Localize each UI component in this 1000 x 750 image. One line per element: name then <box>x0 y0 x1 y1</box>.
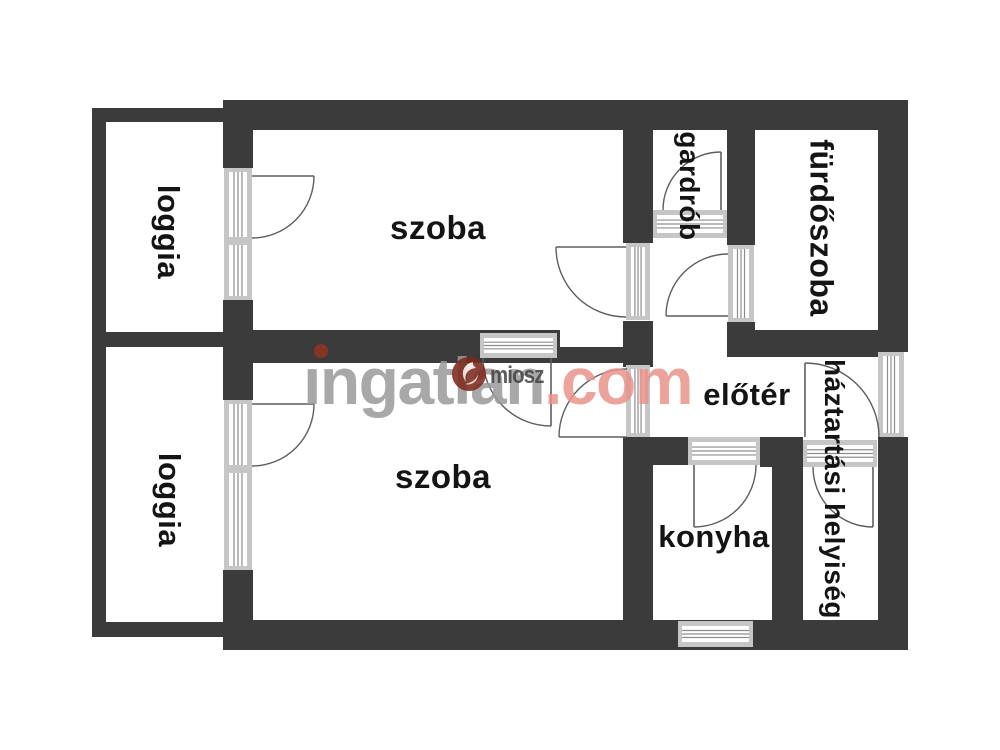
door-swing-arc <box>666 254 728 316</box>
wall-segment <box>92 622 225 637</box>
frame-cap <box>224 168 252 172</box>
door-swing-arc <box>694 465 756 527</box>
frame-cap <box>626 316 650 320</box>
frame-rail <box>728 245 733 322</box>
wall-segment <box>223 100 253 168</box>
room-label-loggia-bottom: loggia <box>151 453 187 547</box>
frame-sill <box>225 465 251 473</box>
wall-segment <box>225 620 908 650</box>
room-label-gardrob: gardrób <box>673 131 705 240</box>
frame-rail <box>224 168 229 300</box>
frame-rail <box>224 400 229 570</box>
wall-segment <box>727 100 755 245</box>
frame-rail <box>480 353 557 358</box>
frame-cap <box>553 333 557 358</box>
wall-segment <box>92 108 106 637</box>
frame-rail <box>247 168 252 300</box>
frame-cap <box>756 437 760 465</box>
wall-segment <box>623 321 653 367</box>
frame-cap <box>749 621 753 647</box>
room-label-furdoszoba: fürdőszoba <box>803 139 840 316</box>
wall-segment <box>223 100 908 130</box>
frame-cap <box>878 352 904 356</box>
frame-cap <box>678 621 682 647</box>
wall-segment <box>772 437 803 620</box>
frame-rail <box>678 642 753 647</box>
wall-segment <box>653 437 688 465</box>
door-swing-arc <box>252 404 314 466</box>
frame-rail <box>878 352 883 437</box>
wall-segment <box>623 437 653 620</box>
wall-segment <box>223 570 253 650</box>
frame-rail <box>749 245 754 322</box>
frame-rail <box>899 352 904 437</box>
door-swing-arc <box>559 369 627 437</box>
door-swing-arc <box>556 247 626 317</box>
frame-cap <box>224 566 252 570</box>
frame-cap <box>728 245 754 249</box>
frame-rail <box>626 243 631 320</box>
frame-cap <box>803 440 807 467</box>
frame-cap <box>653 210 657 238</box>
door-swing-arc <box>252 176 314 238</box>
room-label-szoba-bottom: szoba <box>395 458 491 496</box>
wall-segment <box>92 108 225 122</box>
frame-cap <box>626 433 650 437</box>
room-label-elater: előtér <box>703 377 790 413</box>
floorplan-drawing <box>0 0 1000 750</box>
frame-cap <box>878 433 904 437</box>
floorplan-canvas: szobaszobaelőtérkonyhaloggialoggiagardró… <box>0 0 1000 750</box>
frame-rail <box>626 365 631 437</box>
frame-cap <box>688 437 692 465</box>
frame-cap <box>626 365 650 369</box>
frame-cap <box>723 210 727 238</box>
frame-rail <box>688 460 760 465</box>
frame-cap <box>224 296 252 300</box>
frame-rail <box>678 621 753 626</box>
wall-segment <box>92 332 225 347</box>
frame-cap <box>728 318 754 322</box>
frame-rail <box>688 437 760 442</box>
frame-rail <box>247 400 252 570</box>
door-swing-arc <box>483 358 551 426</box>
room-label-konyha: konyha <box>658 519 770 555</box>
frame-rail <box>645 243 650 320</box>
room-label-haztartasi-helyiseg: háztartási helyiség <box>818 359 850 619</box>
wall-segment <box>878 437 908 650</box>
frame-cap <box>480 333 484 358</box>
frame-cap <box>224 400 252 404</box>
room-label-szoba-top: szoba <box>390 209 486 247</box>
room-label-loggia-top: loggia <box>150 185 186 279</box>
wall-segment <box>623 100 653 243</box>
frame-sill <box>225 237 251 245</box>
frame-cap <box>626 243 650 247</box>
frame-rail <box>480 333 557 338</box>
frame-cap <box>873 440 877 467</box>
wall-segment <box>727 330 878 357</box>
wall-segment <box>878 100 908 352</box>
frame-rail <box>645 365 650 437</box>
